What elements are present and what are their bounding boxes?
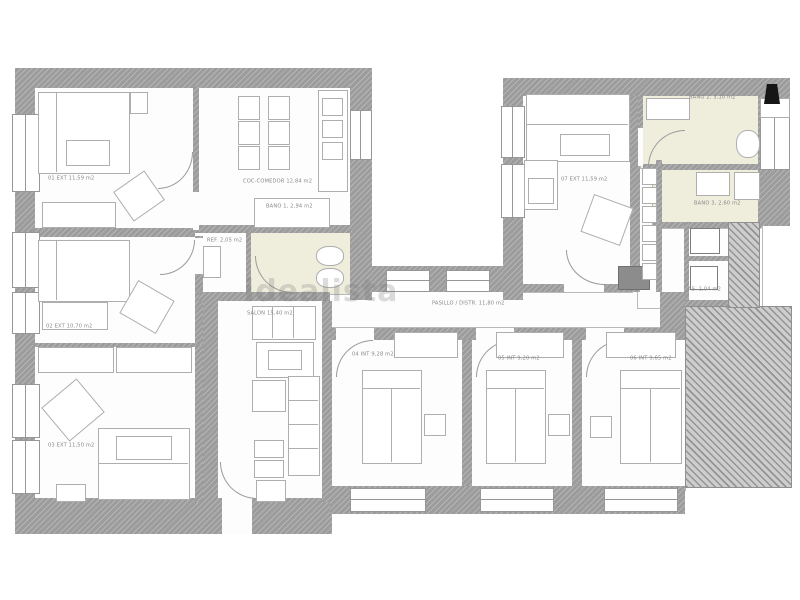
- chair: [238, 146, 260, 170]
- adjacent-building-mass: [685, 306, 792, 488]
- closet: [116, 347, 192, 373]
- window: [350, 110, 372, 160]
- room-label: 05 INT 9,20 m2: [498, 356, 540, 362]
- window: [501, 164, 525, 218]
- bed: [38, 240, 130, 302]
- watermark: idealista: [244, 274, 398, 309]
- toilet: [736, 130, 760, 158]
- room-label: 02 EXT 10,70 m2: [46, 324, 92, 330]
- floor-plan: 01 EXT 11,59 m2 COC-COMEDOR 12,84 m2 BAÑ…: [0, 0, 800, 600]
- closet: [38, 347, 114, 373]
- closet: [394, 332, 458, 358]
- wall: [203, 293, 218, 502]
- room-label: 01 EXT 11,59 m2: [48, 176, 94, 182]
- window: [350, 488, 426, 512]
- wall: [195, 345, 203, 502]
- door-gap: [638, 128, 643, 166]
- shelf: [642, 206, 657, 223]
- chair: [268, 121, 290, 145]
- window: [12, 114, 40, 192]
- wall: [15, 68, 372, 88]
- chair: [268, 146, 290, 170]
- room-label: BAÑO 2, 3,10 m2: [689, 95, 736, 101]
- bed-line: [650, 388, 651, 462]
- room-label: BAÑO 3, 2,60 m2: [694, 201, 741, 207]
- bed-table: [560, 134, 610, 156]
- side-table: [56, 484, 86, 502]
- bed: [362, 370, 422, 464]
- closet: [496, 332, 564, 358]
- shelf: [642, 187, 657, 204]
- shelf-line: [288, 448, 318, 449]
- room-label: AS. 1,04 m2: [688, 287, 721, 293]
- window: [760, 116, 790, 170]
- wall: [462, 340, 472, 490]
- bed-line: [56, 92, 57, 172]
- bed-line: [56, 240, 57, 300]
- kitchen-appliance: [322, 142, 343, 160]
- shelf: [642, 263, 657, 280]
- adjacent-building-mass: [728, 222, 760, 308]
- sofa-line: [98, 463, 188, 464]
- wall: [33, 228, 195, 237]
- kitchen-appliance: [322, 120, 343, 138]
- bed-table: [66, 140, 110, 166]
- chair: [528, 178, 554, 204]
- window: [12, 440, 40, 494]
- armchair: [254, 460, 284, 478]
- shelf: [642, 244, 657, 261]
- desk: [42, 202, 116, 228]
- toilet: [316, 246, 344, 266]
- door-gap: [336, 328, 374, 340]
- bed: [486, 370, 546, 464]
- armchair: [254, 440, 284, 458]
- washbasin: [646, 98, 690, 120]
- wall: [660, 292, 685, 330]
- nightstand: [130, 92, 148, 114]
- room-label: PASILLO / DISTR. 11,80 m2: [432, 301, 505, 307]
- window: [604, 488, 678, 512]
- shelf: [642, 225, 657, 242]
- window: [446, 270, 490, 292]
- bookshelf: [288, 376, 320, 476]
- chair: [268, 96, 290, 120]
- room-label: REF. 2,05 m2: [207, 238, 242, 244]
- wall: [15, 498, 332, 534]
- nightstand: [424, 414, 446, 436]
- room-label: 03 EXT 11,50 m2: [48, 443, 94, 449]
- room-label: 07 EXT 11,59 m2: [561, 177, 607, 183]
- room-label: 04 INT 9,28 m2: [352, 352, 394, 358]
- room-label: 06 INT 9,65 m2: [630, 356, 672, 362]
- window: [12, 384, 40, 438]
- shelf-line: [288, 424, 318, 425]
- chair: [238, 121, 260, 145]
- wall: [572, 340, 582, 490]
- coffee-table: [256, 480, 286, 502]
- window: [501, 106, 525, 158]
- window: [12, 292, 40, 334]
- sofa: [252, 380, 286, 412]
- shower: [734, 172, 760, 200]
- door-gap: [564, 284, 604, 292]
- sofa-cushion: [116, 436, 172, 460]
- kitchen-appliance: [322, 98, 343, 116]
- sideboard-line: [293, 306, 294, 338]
- entry-door-gap: [222, 498, 252, 534]
- bed-line: [391, 388, 392, 462]
- wall: [684, 256, 730, 261]
- chair: [238, 96, 260, 120]
- room-label: COC-COMEDOR 12,84 m2: [243, 179, 312, 185]
- door-gap: [195, 238, 203, 274]
- shelf: [642, 168, 657, 185]
- bed-line: [526, 124, 628, 125]
- bed-line: [515, 388, 516, 462]
- closet: [606, 332, 676, 358]
- room-label: SALÓN 15,40 m2: [247, 311, 293, 317]
- bed: [620, 370, 682, 464]
- door-gap: [193, 192, 199, 230]
- window: [480, 488, 554, 512]
- tv: [268, 350, 302, 370]
- washbasin: [203, 246, 221, 278]
- window: [12, 232, 40, 288]
- shelf-line: [288, 400, 318, 401]
- nightstand: [590, 416, 612, 438]
- nightstand: [548, 414, 570, 436]
- washbasin: [696, 172, 730, 196]
- room-label: BAÑO 1, 2,94 m2: [266, 204, 313, 210]
- wall: [350, 68, 372, 300]
- fixture: [690, 228, 720, 254]
